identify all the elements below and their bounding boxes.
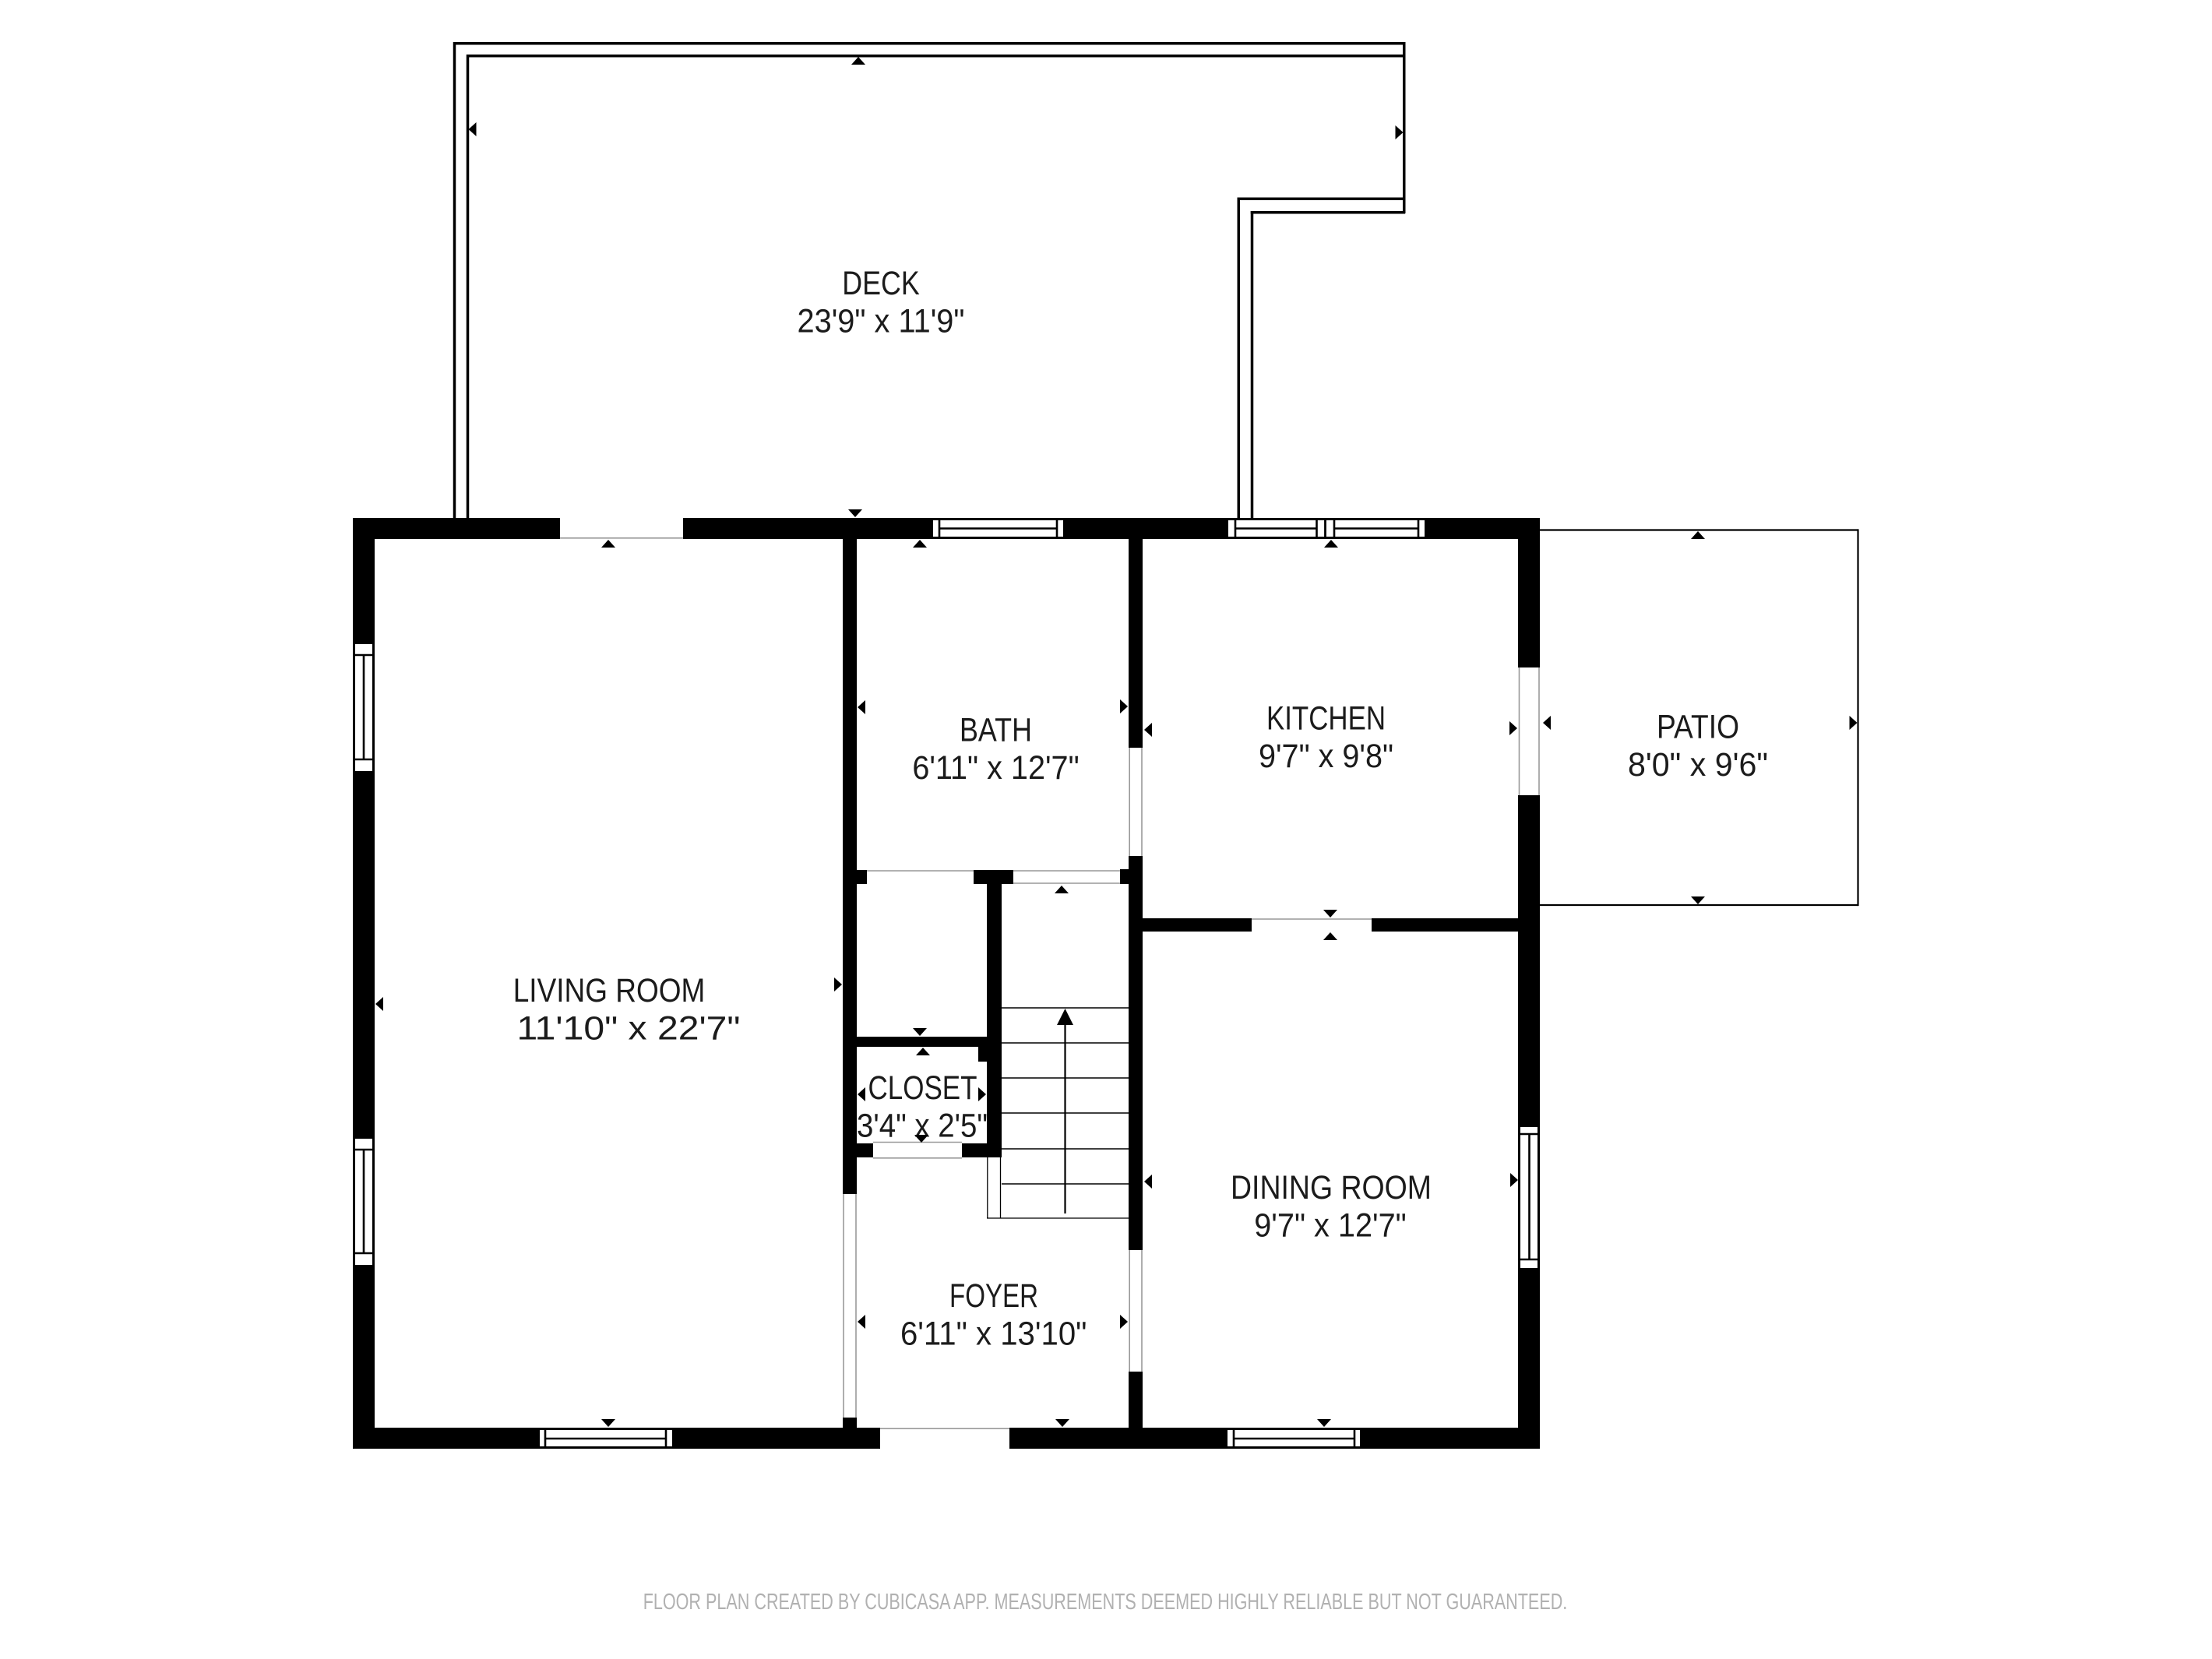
svg-text:8'0" x 9'6": 8'0" x 9'6" xyxy=(1628,746,1768,784)
svg-text:DECK: DECK xyxy=(842,265,920,302)
svg-text:6'11" x 12'7": 6'11" x 12'7" xyxy=(912,749,1079,787)
svg-text:CLOSET: CLOSET xyxy=(868,1069,977,1107)
svg-text:KITCHEN: KITCHEN xyxy=(1266,700,1386,738)
svg-text:DINING ROOM: DINING ROOM xyxy=(1231,1169,1432,1206)
svg-text:PATIO: PATIO xyxy=(1657,709,1739,746)
svg-text:LIVING ROOM: LIVING ROOM xyxy=(513,972,706,1009)
svg-text:FLOOR PLAN CREATED BY CUBICASA: FLOOR PLAN CREATED BY CUBICASA APP. MEAS… xyxy=(643,1590,1568,1615)
svg-text:BATH: BATH xyxy=(960,712,1032,749)
svg-text:9'7" x 12'7": 9'7" x 12'7" xyxy=(1254,1207,1407,1245)
svg-text:9'7" x 9'8": 9'7" x 9'8" xyxy=(1259,738,1393,775)
svg-text:6'11" x 13'10": 6'11" x 13'10" xyxy=(900,1316,1087,1353)
svg-text:FOYER: FOYER xyxy=(949,1277,1038,1315)
svg-text:11'10" x 22'7": 11'10" x 22'7" xyxy=(517,1010,741,1048)
svg-text:23'9" x 11'9": 23'9" x 11'9" xyxy=(798,303,965,340)
